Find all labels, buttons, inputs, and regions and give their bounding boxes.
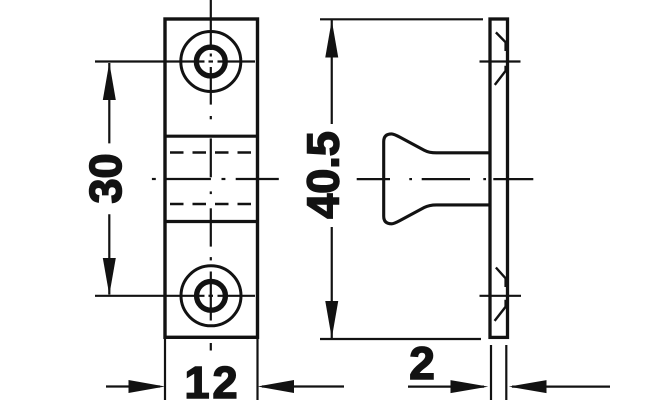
svg-text:40.5: 40.5 (298, 131, 349, 219)
svg-text:2: 2 (409, 337, 435, 389)
svg-text:12: 12 (184, 357, 240, 400)
svg-text:30: 30 (80, 153, 131, 203)
